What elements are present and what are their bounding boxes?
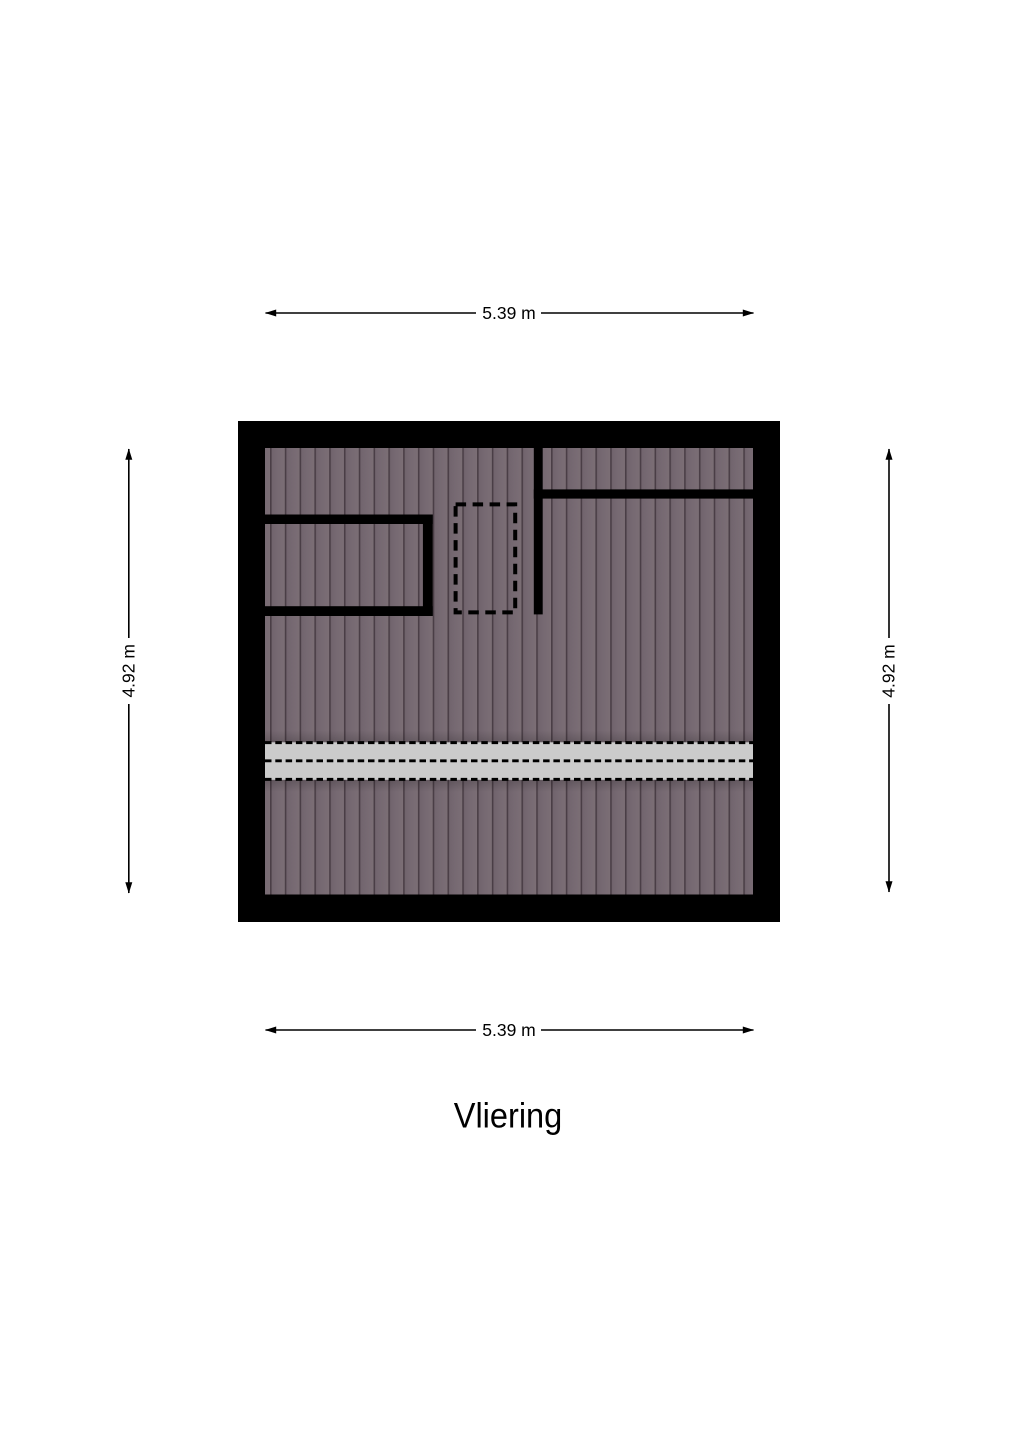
- svg-text:5.39 m: 5.39 m: [482, 1020, 536, 1040]
- svg-text:4.92 m: 4.92 m: [119, 644, 139, 698]
- svg-text:5.39 m: 5.39 m: [482, 303, 536, 323]
- svg-text:4.92 m: 4.92 m: [879, 644, 899, 698]
- svg-text:Vliering: Vliering: [454, 1096, 563, 1136]
